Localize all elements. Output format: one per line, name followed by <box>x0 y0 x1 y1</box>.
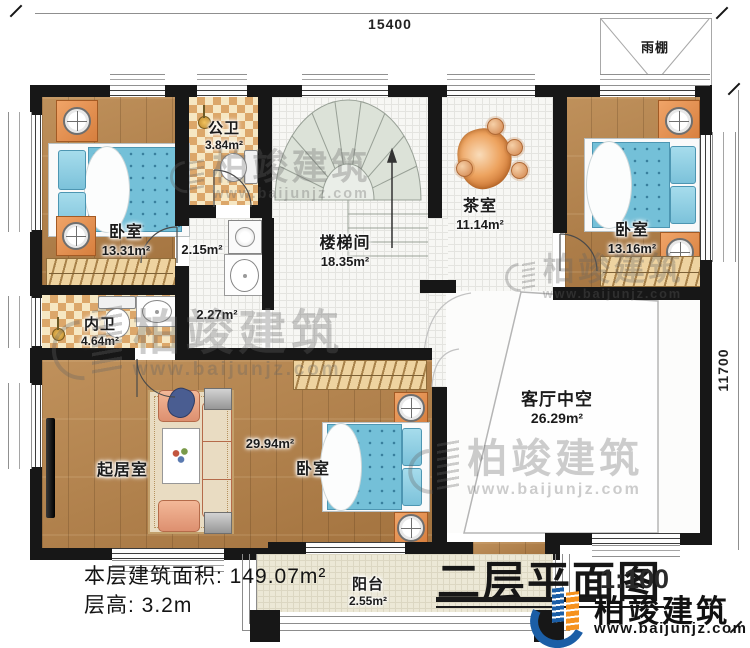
wall <box>250 205 272 218</box>
flower-decor-icon <box>170 447 190 463</box>
room-name: 内卫 <box>60 316 140 334</box>
room-area: 2.55m² <box>330 594 406 608</box>
window-sill <box>110 74 165 86</box>
room-label-canopy: 雨棚 <box>628 40 682 55</box>
room-label-tea-room: 茶室 11.14m² <box>435 198 525 232</box>
nightstand <box>394 392 428 424</box>
room-label-open-area: 29.94m² <box>233 436 307 451</box>
window-sill <box>8 383 32 469</box>
nightstand <box>56 100 98 142</box>
room-label-laundry: 2.15m² <box>168 242 236 257</box>
stairwell-floor <box>272 97 428 348</box>
window <box>302 85 388 97</box>
pillow <box>402 468 422 506</box>
floor-height-text: 层高: 3.2m <box>84 589 192 619</box>
room-label-balcony: 阳台 2.55m² <box>330 576 406 608</box>
room-name: 卧室 <box>275 461 351 480</box>
wall <box>258 97 272 218</box>
room-name: 公卫 <box>186 120 262 138</box>
room-name: 卧室 <box>86 224 166 243</box>
brand-logo-icon <box>530 584 588 638</box>
wall <box>42 285 175 295</box>
window <box>447 85 535 97</box>
window-sill <box>197 74 247 86</box>
wall <box>189 205 216 218</box>
window <box>306 542 405 554</box>
wall <box>553 287 712 300</box>
toilet-bowl <box>220 153 247 182</box>
lamp-icon <box>397 394 425 422</box>
room-area: 2.27m² <box>183 307 251 322</box>
nightstand <box>658 100 700 142</box>
room-label-bedroom-bottom: 卧室 <box>275 461 351 480</box>
pillow <box>58 150 86 190</box>
window <box>197 85 247 97</box>
room-name: 茶室 <box>435 198 525 217</box>
room-label-bedroom-top-left: 卧室 13.31m² <box>86 224 166 258</box>
pillow <box>402 428 422 466</box>
window-sill <box>600 74 710 86</box>
tea-stool <box>506 139 523 156</box>
wall <box>42 348 135 360</box>
side-table <box>204 512 232 534</box>
room-label-living-room: 起居室 <box>80 462 165 481</box>
room-area: 3.84m² <box>186 138 262 152</box>
room-label-public-bath: 公卫 3.84m² <box>186 120 262 152</box>
window <box>110 85 165 97</box>
wall <box>432 387 447 548</box>
dimension-tick <box>716 7 729 20</box>
room-area: 26.29m² <box>500 410 614 427</box>
wardrobe <box>46 258 176 287</box>
brand-url: www.baijunjz.com <box>594 620 747 637</box>
side-table <box>204 388 232 410</box>
pillow <box>670 186 696 224</box>
wardrobe <box>293 360 427 390</box>
wall <box>175 97 189 226</box>
bed-blanket <box>586 141 632 229</box>
balcony-post <box>250 610 280 642</box>
tv <box>46 418 55 518</box>
window-sill <box>8 112 32 232</box>
room-label-void: 客厅中空 26.29m² <box>500 390 614 427</box>
wall <box>175 348 432 360</box>
room-label-inner-bath: 内卫 4.64m² <box>60 316 140 348</box>
room-name: 阳台 <box>330 576 406 594</box>
room-label-stairwell: 楼梯间 18.35m² <box>287 235 403 269</box>
room-area: 2.15m² <box>168 242 236 257</box>
room-area: 13.16m² <box>588 241 676 256</box>
coffee-table <box>162 428 200 484</box>
room-name: 楼梯间 <box>287 235 403 254</box>
dimension-tick <box>10 5 23 18</box>
window-sill <box>447 74 535 86</box>
room-area: 13.31m² <box>86 243 166 258</box>
wall <box>553 97 567 233</box>
window-sill <box>302 74 388 86</box>
top-dimension-value: 15400 <box>345 16 435 32</box>
window-sill <box>712 132 736 262</box>
room-name: 客厅中空 <box>500 390 614 410</box>
room-name: 起居室 <box>80 462 165 481</box>
wall <box>420 280 456 293</box>
window <box>592 533 680 545</box>
logo-building-orange-icon <box>566 591 579 631</box>
window-sill <box>8 296 32 348</box>
wall <box>262 218 274 310</box>
right-dimension-line <box>738 90 739 550</box>
pillow <box>670 146 696 184</box>
right-dimension-value: 11700 <box>715 335 731 405</box>
window <box>700 135 712 260</box>
room-name: 卧室 <box>588 222 676 241</box>
tea-stool <box>456 160 473 177</box>
lamp-icon <box>397 514 425 542</box>
room-area: 18.35m² <box>287 254 403 269</box>
sink <box>142 300 172 323</box>
room-area: 29.94m² <box>233 436 307 451</box>
room-area: 4.64m² <box>60 334 140 348</box>
window <box>600 85 695 97</box>
lamp-icon <box>63 107 91 135</box>
room-name: 雨棚 <box>628 40 682 55</box>
room-label-hallway: 2.27m² <box>183 307 251 322</box>
armchair <box>158 500 200 532</box>
room-area: 11.14m² <box>435 217 525 232</box>
top-dimension-line <box>35 13 712 14</box>
window <box>112 548 224 560</box>
wall <box>268 542 306 554</box>
room-label-bedroom-top-right: 卧室 13.16m² <box>588 222 676 256</box>
lamp-icon <box>665 107 693 135</box>
floor-plan-canvas: 卧室 13.31m² 公卫 3.84m² 2.15m² 2.27m² 楼梯间 1… <box>0 0 750 648</box>
tea-stool <box>487 118 504 135</box>
tea-stool <box>511 162 528 179</box>
nightstand <box>394 512 428 544</box>
sink <box>230 259 259 292</box>
wardrobe <box>600 256 702 287</box>
sofa-couch <box>202 402 232 518</box>
logo-building-blue-icon <box>552 587 564 622</box>
floor-area-text: 本层建筑面积: 149.07m² <box>84 560 326 590</box>
